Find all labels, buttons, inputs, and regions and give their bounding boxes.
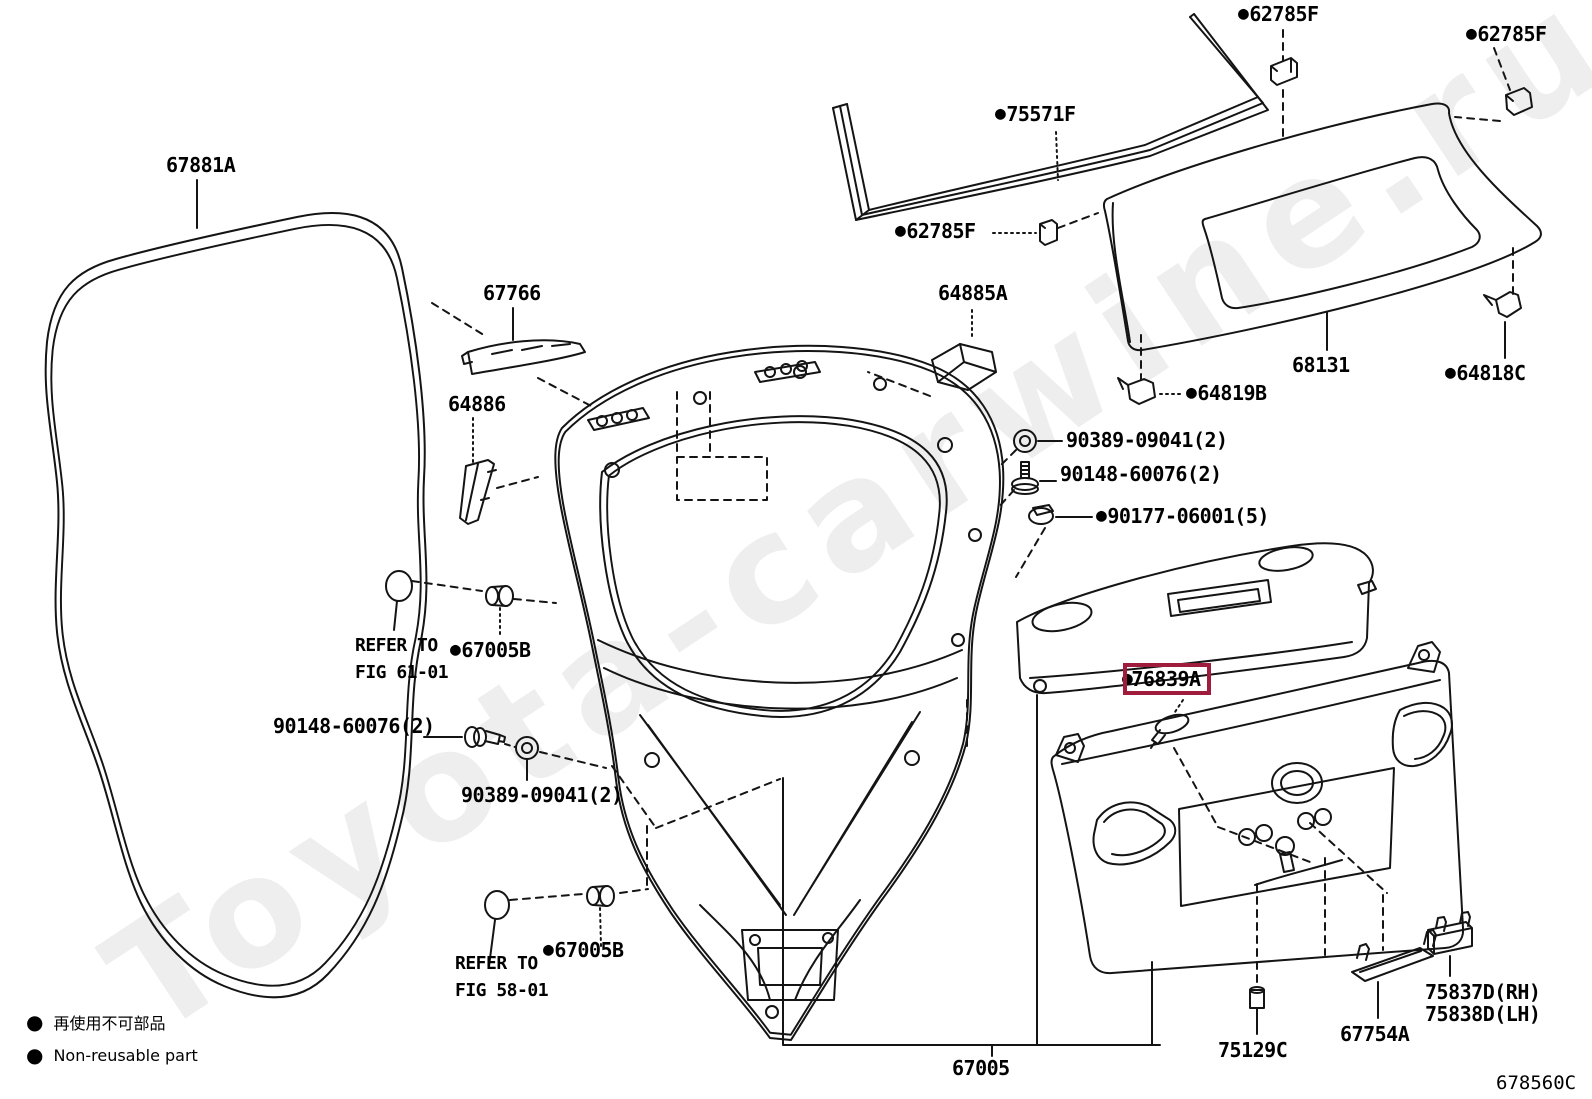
non-reusable-bullet: ● xyxy=(895,222,905,240)
part-number: 67881A xyxy=(166,155,235,175)
part-label-90177: ●90177-06001(5) xyxy=(1096,506,1269,526)
highlight-box: 76839A xyxy=(1123,663,1210,695)
non-reusable-bullet: ● xyxy=(1445,364,1455,382)
part-number: 67766 xyxy=(483,283,541,303)
fastener-screw-90148-right xyxy=(998,462,1056,508)
figure-code: 678560C xyxy=(1496,1072,1576,1094)
part-number: 64885A xyxy=(938,283,1007,303)
exploded-diagram-line-art xyxy=(0,0,1592,1099)
part-label-76839A-highlighted: ●76839A xyxy=(1122,663,1211,695)
part-number: 67754A xyxy=(1340,1024,1409,1044)
part-number: 67005B xyxy=(554,940,623,960)
part-label-64818C: ●64818C xyxy=(1445,363,1526,383)
non-reusable-bullet: ● xyxy=(1096,507,1106,525)
parts-diagram-page: Toyota-carwine.ru xyxy=(0,0,1592,1099)
back-window-glass-68131 xyxy=(1104,103,1541,350)
part-number: 62785F xyxy=(1477,24,1546,44)
legend-bullet-icon: ● xyxy=(26,1045,43,1065)
refer-note-fig-61-01: REFER TOFIG 61-01 xyxy=(355,632,448,686)
part-label-67881A: 67881A xyxy=(166,155,235,175)
part-number: 67005 xyxy=(952,1058,1010,1078)
part-label-64885A: 64885A xyxy=(938,283,1007,303)
refer-note-fig-58-01: REFER TOFIG 58-01 xyxy=(455,950,548,1004)
hinge-strip-64886 xyxy=(460,418,538,524)
legend-text-en: Non-reusable part xyxy=(53,1046,197,1065)
clip-62785F-mid xyxy=(993,213,1098,245)
fastener-clip-90177 xyxy=(1016,505,1092,577)
part-label-90148-left: 90148-60076(2) xyxy=(273,716,435,736)
part-number: 75838D(LH) xyxy=(1425,1004,1540,1024)
fastener-grommet-90389-left xyxy=(516,737,606,780)
part-label-67766: 67766 xyxy=(483,283,541,303)
part-label-62785F-top: ●62785F xyxy=(1238,4,1319,24)
refer-line1: REFER TO xyxy=(455,953,538,974)
non-reusable-bullet: ● xyxy=(1186,384,1196,402)
part-number: 75129C xyxy=(1218,1040,1287,1060)
part-number: 75571F xyxy=(1006,104,1075,124)
part-number: 64886 xyxy=(448,394,506,414)
back-door-outer-panel xyxy=(1052,642,1464,985)
legend-text-jp: 再使用不可部品 xyxy=(53,1010,165,1034)
clip-75129C xyxy=(1250,987,1264,1034)
part-label-75838D: 75838D(LH) xyxy=(1425,1004,1540,1024)
part-number: 90389-09041(2) xyxy=(461,785,623,805)
part-label-90148-right: 90148-60076(2) xyxy=(1060,464,1222,484)
part-number: 64818C xyxy=(1456,363,1525,383)
part-label-90389-right: 90389-09041(2) xyxy=(1066,430,1228,450)
part-label-67005: 67005 xyxy=(952,1058,1010,1078)
refer-line2: FIG 58-01 xyxy=(455,980,548,1001)
clip-62785F-top-right xyxy=(1455,48,1532,121)
part-label-90389-left: 90389-09041(2) xyxy=(461,785,623,805)
part-number: 62785F xyxy=(906,221,975,241)
non-reusable-bullet: ● xyxy=(995,105,1005,123)
non-reusable-bullet: ● xyxy=(450,641,460,659)
part-label-75129C: 75129C xyxy=(1218,1040,1287,1060)
part-number: 64819B xyxy=(1197,383,1266,403)
part-number: 68131 xyxy=(1292,355,1350,375)
grommet-hole-and-pin-67005B-upper xyxy=(386,571,556,636)
clip-62785F-top xyxy=(1271,30,1297,136)
legend-bullet-icon: ● xyxy=(26,1012,43,1032)
part-label-64819B: ●64819B xyxy=(1186,383,1267,403)
part-label-75571F: ●75571F xyxy=(995,104,1076,124)
part-label-67005B-lower: ●67005B xyxy=(543,940,624,960)
part-number: 90148-60076(2) xyxy=(1060,464,1222,484)
part-label-68131: 68131 xyxy=(1292,355,1350,375)
weatherstrip-67881A xyxy=(46,180,427,997)
back-door-inner-panel xyxy=(555,346,1003,1040)
license-lamp-lens-67754A xyxy=(1352,930,1436,1018)
part-number: 90389-09041(2) xyxy=(1066,430,1228,450)
part-label-67005B-upper: ●67005B xyxy=(450,640,531,660)
part-number: 90148-60076(2) xyxy=(273,716,435,736)
refer-line1: REFER TO xyxy=(355,635,438,656)
non-reusable-bullet: ● xyxy=(1238,5,1248,23)
part-label-67754A: 67754A xyxy=(1340,1024,1409,1044)
part-number: 62785F xyxy=(1249,4,1318,24)
part-label-75837D: 75837D(RH) xyxy=(1425,982,1540,1002)
fastener-screw-90148-left xyxy=(424,727,515,747)
part-label-62785F-mid: ●62785F xyxy=(895,221,976,241)
clip-75837D-75838D xyxy=(1428,912,1472,976)
legend-non-reusable-jp: ●再使用不可部品 xyxy=(26,1010,165,1034)
non-reusable-bullet: ● xyxy=(1466,25,1476,43)
part-number: 75837D(RH) xyxy=(1425,982,1540,1002)
part-label-62785F-top-right: ●62785F xyxy=(1466,24,1547,44)
assembly-bracket-67005 xyxy=(612,695,1160,1056)
legend-non-reusable-en: ●Non-reusable part xyxy=(26,1045,198,1065)
part-number: 67005B xyxy=(461,640,530,660)
part-label-64886: 64886 xyxy=(448,394,506,414)
refer-line2: FIG 61-01 xyxy=(355,662,448,683)
part-number: 90177-06001(5) xyxy=(1107,506,1269,526)
